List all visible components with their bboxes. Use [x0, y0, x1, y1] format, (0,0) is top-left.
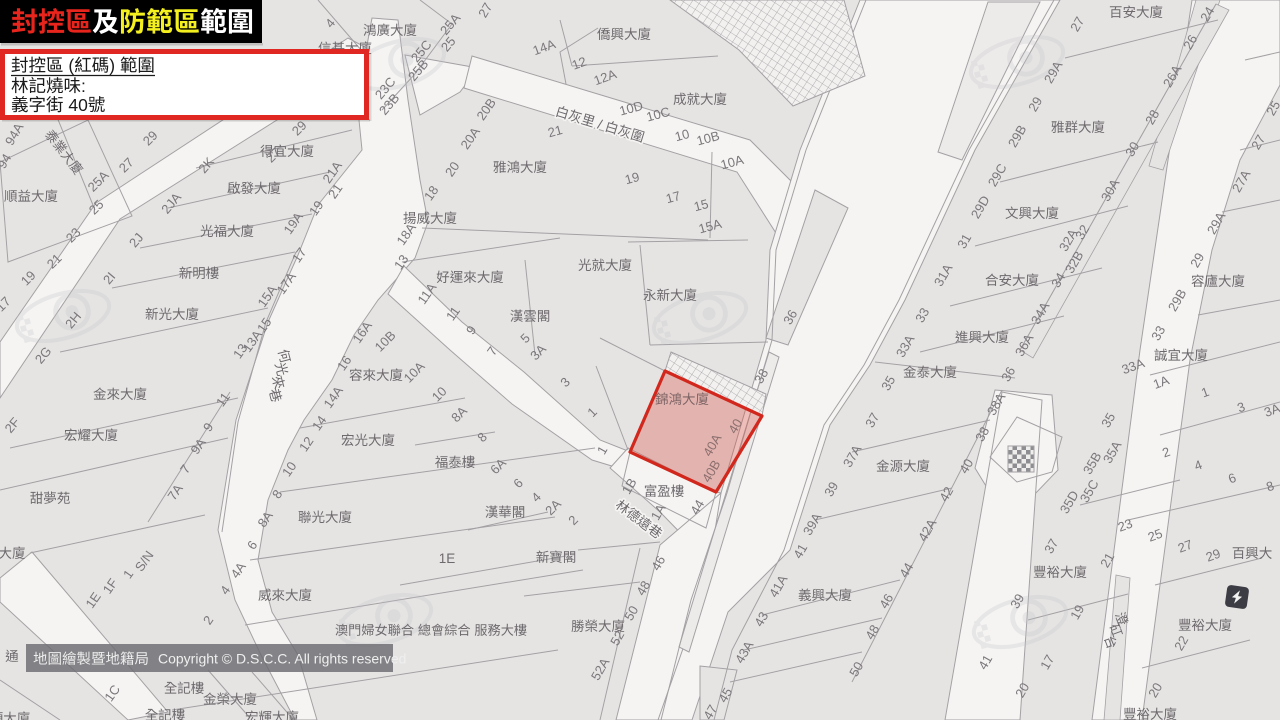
svg-text::: : [81, 76, 86, 96]
svg-text:(: ( [68, 55, 74, 75]
svg-text:): ) [109, 55, 115, 75]
svg-text:40: 40 [68, 95, 88, 115]
svg-text:1E: 1E [439, 551, 456, 566]
svg-text:Copyright © D.S.C.C. All right: Copyright © D.S.C.C. All rights reserved [158, 651, 406, 667]
